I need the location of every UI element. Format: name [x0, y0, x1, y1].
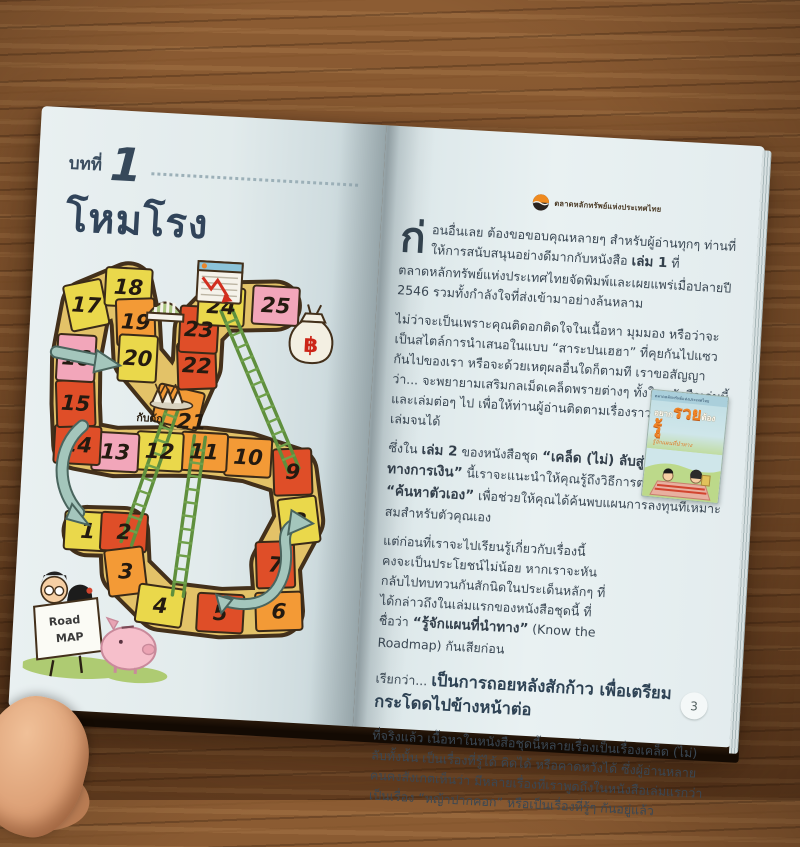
page-number: 3	[690, 699, 698, 713]
cell-number: 20	[122, 345, 153, 372]
cell-number: 25	[260, 292, 291, 319]
chapter-number: 1	[109, 144, 143, 187]
cover-title-part: รวย	[672, 402, 702, 425]
text-segment: ที่จริงแล้ว เนื้อหาในหนังสือชุดนี้หลายเร…	[369, 727, 703, 818]
text-segment: ของหนังสือชุด	[457, 443, 542, 463]
body-text-column: ก่อนอื่นเลย ต้องขอขอบคุณหลายๆ สำหรับผู้อ…	[368, 218, 739, 833]
dotted-line	[152, 173, 359, 188]
publisher-name: ตลาดหลักทรัพย์แห่งประเทศไทย	[554, 197, 662, 215]
paragraph: ก่อนอื่นเลย ต้องขอขอบคุณหลายๆ สำหรับผู้อ…	[397, 218, 739, 318]
book-cover-thumbnail: ตลาดหลักทรัพย์แห่งประเทศไทย อยากรวยต้องร…	[641, 389, 729, 504]
chapter-label: บทที่	[68, 150, 103, 185]
cover-picnic-art	[642, 447, 723, 504]
cell-number: 18	[113, 274, 144, 301]
cell-number: 13	[100, 438, 131, 465]
baht-symbol: ฿	[303, 332, 319, 358]
cell-number: 21	[176, 408, 207, 435]
cover-title-part: รู้	[652, 418, 663, 439]
text-segment: เล่ม 1	[631, 253, 668, 271]
text-segment: เรียกว่า...	[375, 670, 432, 688]
cell-number: 6	[271, 598, 287, 624]
stock-chart-icon	[196, 261, 242, 304]
roadmap-sign	[31, 595, 105, 663]
cell-number: 10	[233, 444, 264, 471]
set-logo-icon	[532, 194, 550, 212]
sign-word-map: MAP	[55, 630, 84, 645]
cell-number: 9	[285, 459, 301, 485]
publisher-logo: ตลาดหลักทรัพย์แห่งประเทศไทย	[532, 194, 662, 218]
cover-title-part: ต้อง	[701, 413, 716, 423]
cell-number: 3	[118, 558, 134, 584]
trap-label: กับดัก	[136, 412, 163, 425]
paragraph: แต่ก่อนที่เราจะไปเรียนรู้เกี่ยวกับเรื่อง…	[377, 531, 609, 665]
cell-number: 12	[144, 438, 175, 465]
right-page: ตลาดหลักทรัพย์แห่งประเทศไทย ก่อนอื่นเลย …	[353, 125, 765, 747]
paragraph: ที่จริงแล้ว เนื้อหาในหนังสือชุดนี้หลายเร…	[368, 725, 710, 824]
text-segment: ซึ่งใน	[388, 439, 422, 456]
photo-scene: บทที่ 1 โหมโรง 1234567891011121314151617…	[0, 0, 800, 800]
text-segment: อนอื่นเลย ต้องขอขอบคุณหลายๆ สำหรับผู้อ่า…	[431, 222, 737, 268]
cell-number: 4	[151, 592, 168, 618]
cell-number: 15	[60, 390, 91, 417]
board-game-illustration: 1234567891011121314151617181920212223242…	[21, 248, 347, 707]
text-segment: เล่ม 2	[421, 441, 458, 459]
cell-number: 22	[181, 352, 212, 379]
open-book: บทที่ 1 โหมโรง 1234567891011121314151617…	[8, 106, 764, 747]
chapter-header: บทที่ 1 โหมโรง	[64, 142, 360, 265]
cover-title: อยากรวยต้องรู้	[648, 400, 727, 444]
cell-number: 2	[116, 519, 132, 545]
sign-word-road: Road	[48, 613, 80, 629]
cell-number: 17	[71, 291, 102, 318]
headline-paragraph: เรียกว่า... เป็นการถอยหลังสักก้าว เพื่อเ…	[374, 666, 714, 733]
text-segment: “ค้นหาตัวเอง”	[386, 483, 475, 504]
left-page: บทที่ 1 โหมโรง 1234567891011121314151617…	[8, 106, 386, 726]
drop-cap: ก่	[399, 220, 426, 256]
text-segment: “รู้จักแผนที่นำทาง”	[412, 615, 528, 637]
cell-number: 11	[189, 438, 220, 465]
cell-number: 23	[183, 316, 214, 343]
